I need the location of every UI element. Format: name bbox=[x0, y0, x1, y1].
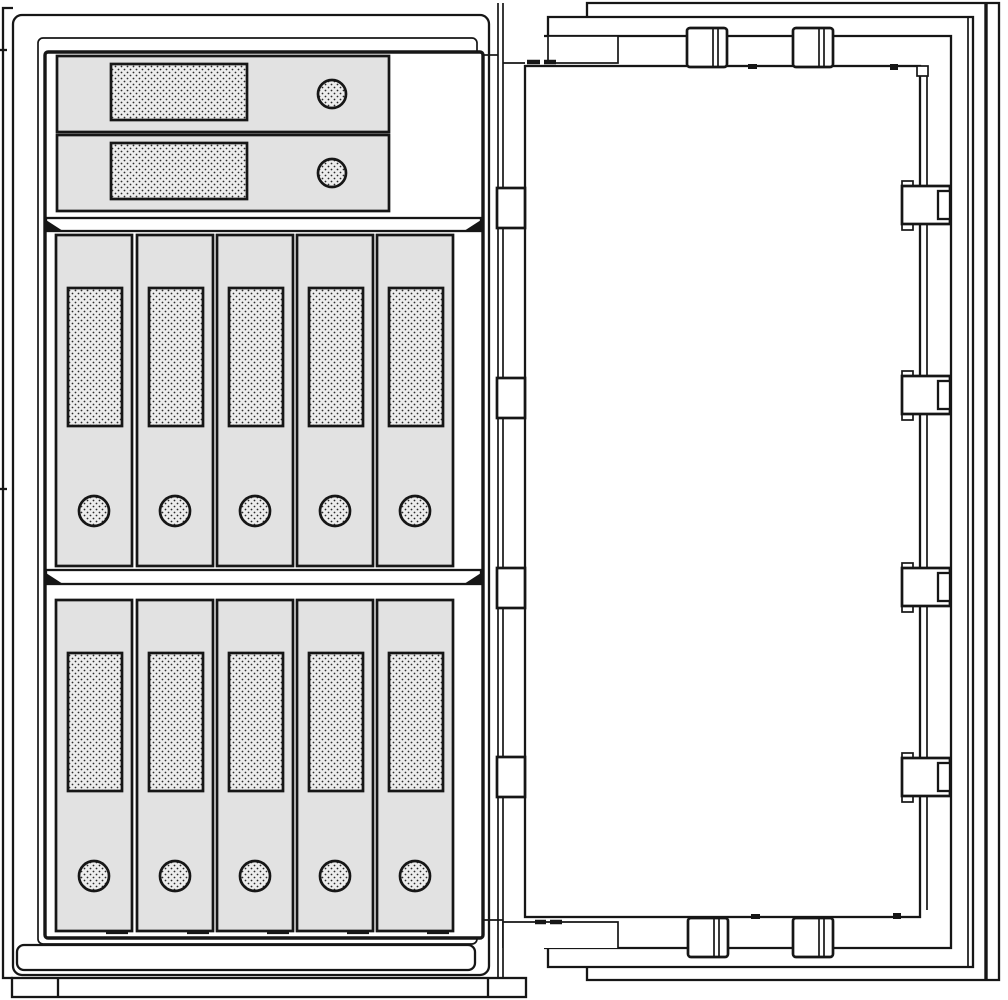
safe-bottom-trim bbox=[17, 945, 475, 970]
base-rail bbox=[12, 978, 526, 997]
door-corner-block-top bbox=[548, 36, 618, 63]
door-inner-panel bbox=[525, 66, 920, 917]
door-hinge-3 bbox=[497, 568, 525, 608]
binder-lower-4 bbox=[297, 600, 373, 931]
drawer-2 bbox=[57, 135, 389, 211]
lock-bolt-right-2 bbox=[902, 371, 950, 420]
safe-left-side-wall bbox=[3, 8, 13, 978]
binder-upper-1 bbox=[56, 235, 132, 566]
lock-bolt-bottom-2 bbox=[793, 918, 833, 957]
safe-open-door-technical-drawing bbox=[0, 0, 1008, 1000]
door-hinge-4 bbox=[497, 757, 525, 797]
panel-edge-mark bbox=[751, 914, 760, 919]
door-corner-block-bottom bbox=[503, 922, 618, 948]
panel-edge-mark bbox=[890, 64, 898, 70]
drawing-canvas bbox=[0, 0, 1008, 1000]
binder-upper-5 bbox=[377, 235, 453, 566]
lock-bolt-bottom-1 bbox=[688, 918, 728, 957]
lock-bolt-right-1 bbox=[902, 181, 950, 230]
panel-edge-mark bbox=[748, 64, 757, 69]
lock-bolt-right-3 bbox=[902, 563, 950, 612]
lock-bolt-right-4 bbox=[902, 753, 950, 802]
lock-bolt-top-1 bbox=[687, 28, 727, 67]
drawer-1 bbox=[57, 56, 389, 132]
base-rail-bar bbox=[12, 978, 526, 997]
binder-lower-3 bbox=[217, 600, 293, 931]
binder-lower-5 bbox=[377, 600, 453, 931]
panel-edge-mark bbox=[893, 913, 901, 919]
door-inner-face bbox=[525, 64, 928, 919]
binder-upper-2 bbox=[137, 235, 213, 566]
door-panel-corner-step bbox=[917, 66, 928, 76]
door-hinge-1 bbox=[497, 188, 525, 228]
lock-bolt-top-2 bbox=[793, 28, 833, 67]
shelf-board-lower bbox=[46, 570, 481, 584]
binder-lower-1 bbox=[56, 600, 132, 931]
door-hinge-2 bbox=[497, 378, 525, 418]
binder-lower-2 bbox=[137, 600, 213, 931]
shelf-board-upper bbox=[46, 218, 481, 231]
binder-upper-4 bbox=[297, 235, 373, 566]
binder-upper-3 bbox=[217, 235, 293, 566]
